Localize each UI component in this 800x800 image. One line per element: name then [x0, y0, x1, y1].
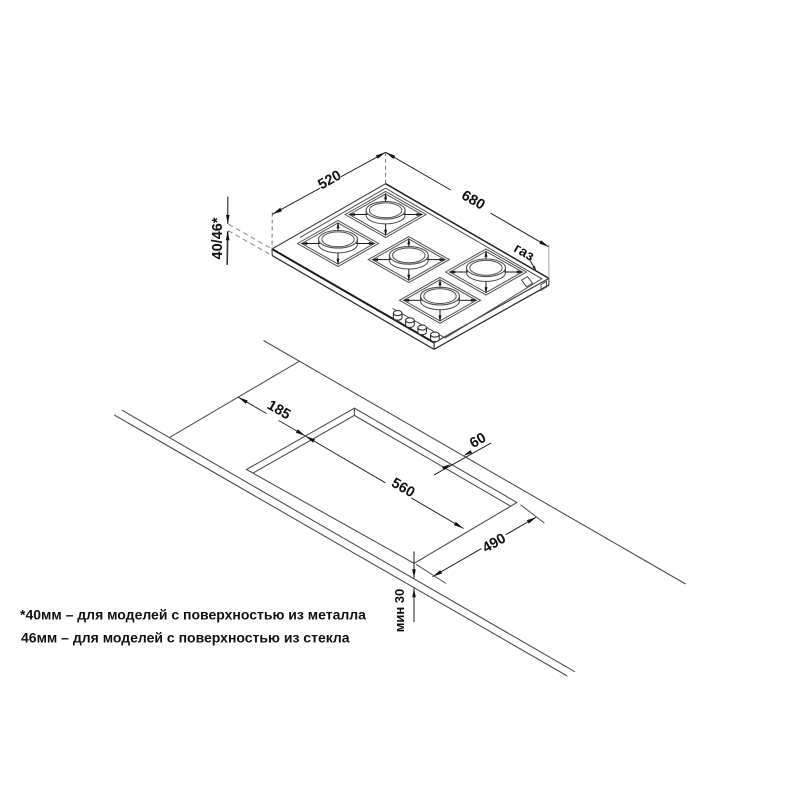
svg-text:мин 30: мин 30 — [392, 589, 407, 633]
svg-text:*40мм – для моделей с поверхн: *40мм – для моделей с поверхностью из ме… — [20, 607, 366, 623]
svg-text:46мм – для моделей с поверхно: 46мм – для моделей с поверхностью из сте… — [21, 630, 350, 646]
svg-text:40/46*: 40/46* — [210, 217, 226, 259]
